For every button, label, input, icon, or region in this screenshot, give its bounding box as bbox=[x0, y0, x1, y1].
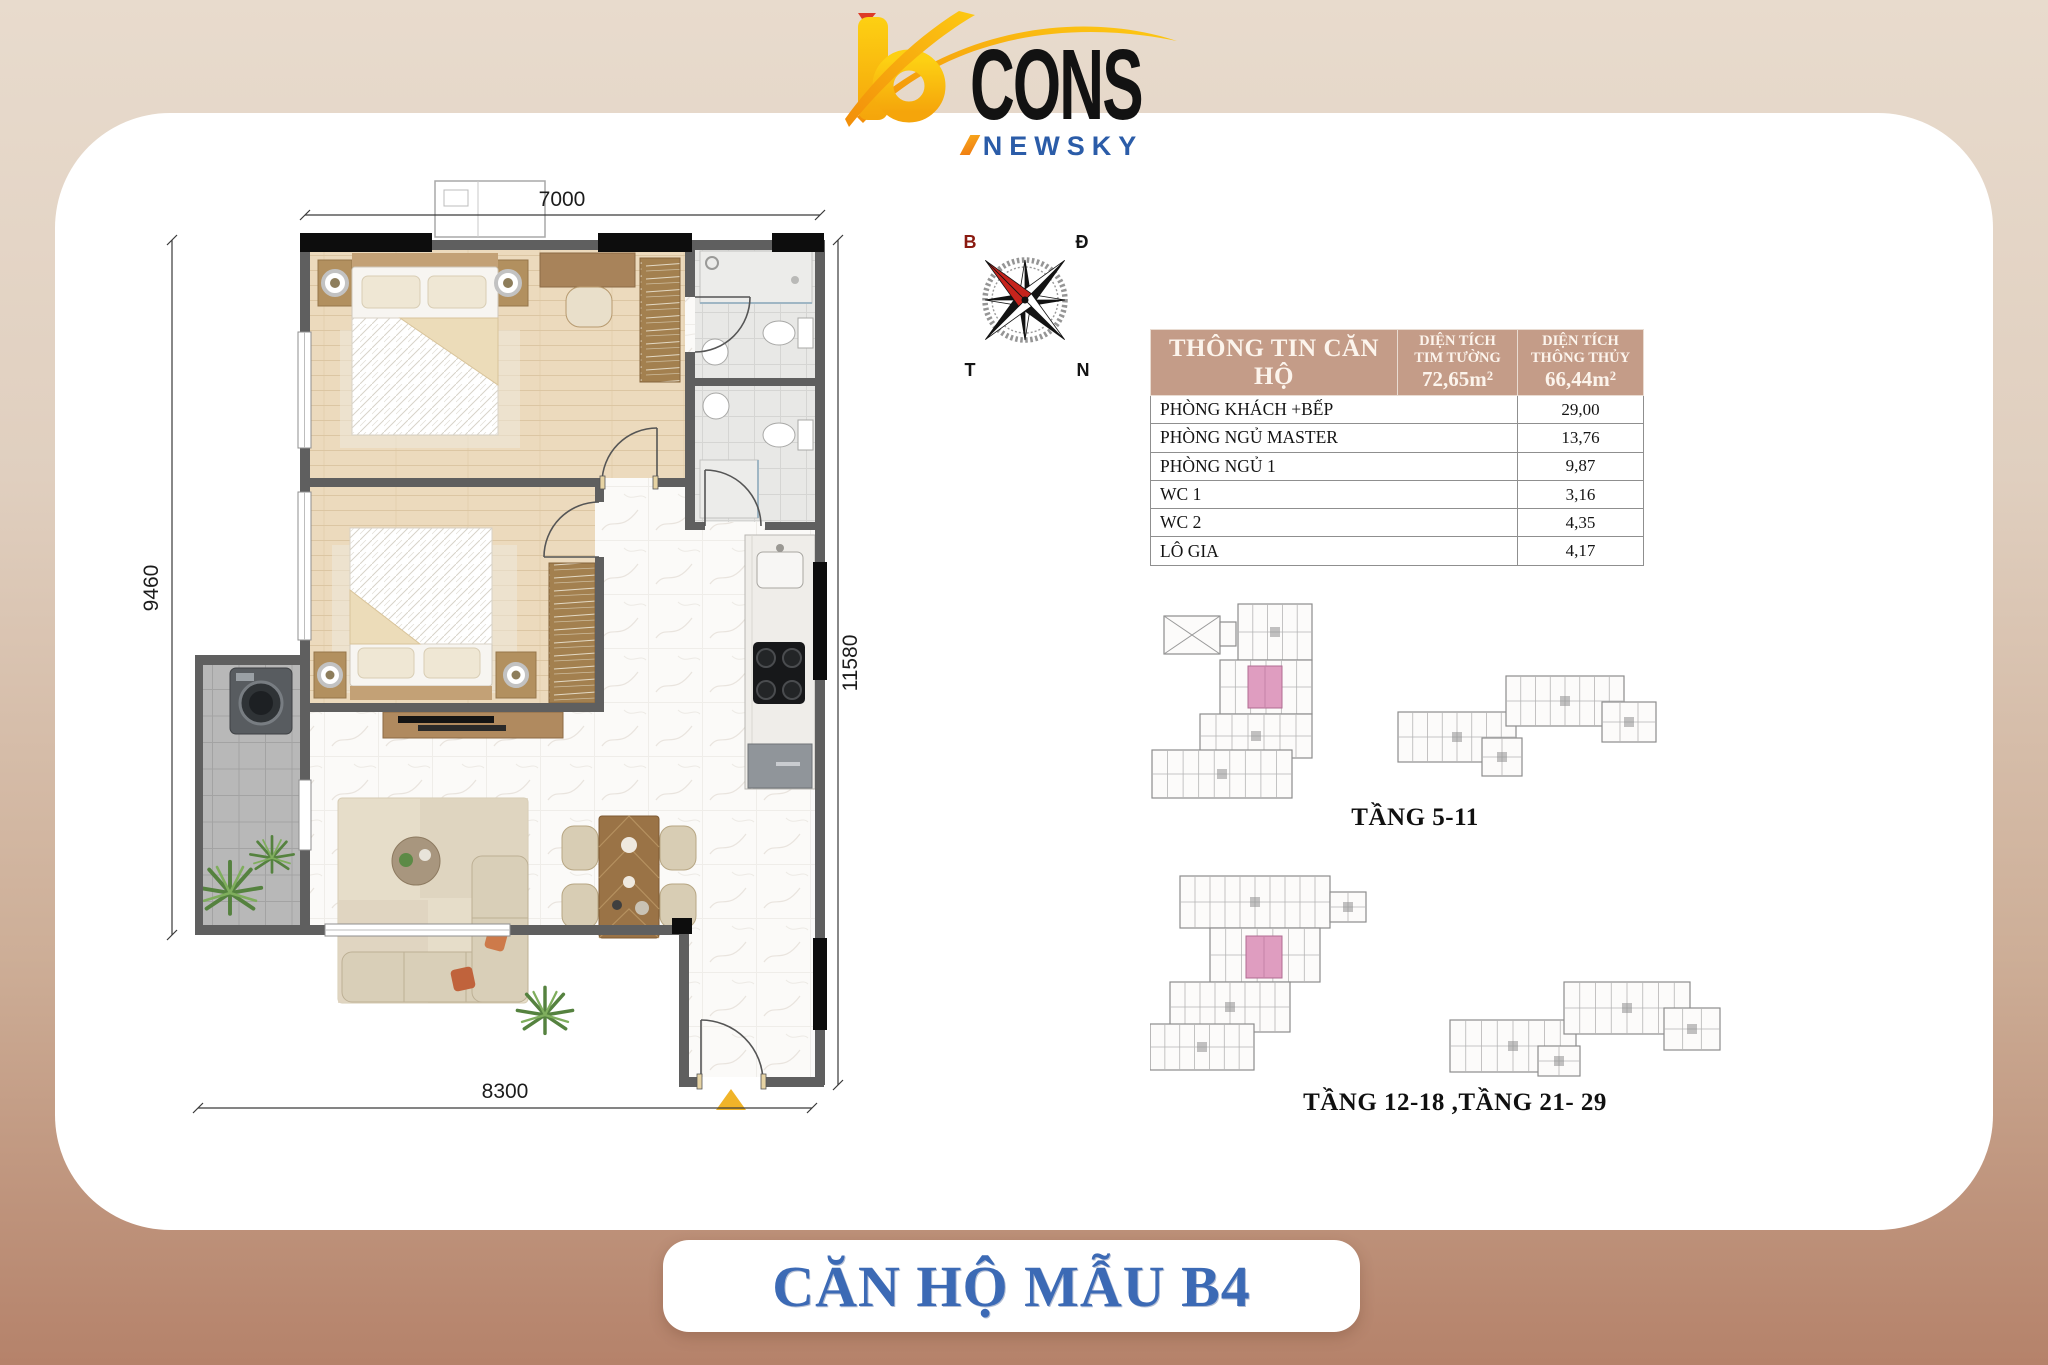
row-label: PHÒNG KHÁCH +BẾP bbox=[1151, 396, 1518, 424]
compass-label-t: T bbox=[965, 360, 976, 380]
col-gross-value: 72,65m² bbox=[1399, 367, 1516, 392]
col-net-value: 66,44m² bbox=[1519, 367, 1642, 392]
col-net-area: DIỆN TÍCH THÔNG THỦY 66,44m² bbox=[1518, 330, 1644, 396]
row-value: 29,00 bbox=[1518, 396, 1644, 424]
logo-word-cons: CONS bbox=[970, 45, 1142, 125]
keyplan-floors-12-29 bbox=[1150, 862, 1760, 1087]
col-gross-area: DIỆN TÍCH TIM TƯỜNG 72,65m² bbox=[1398, 330, 1518, 396]
row-value: 4,17 bbox=[1518, 537, 1644, 565]
apartment-info-table: THÔNG TIN CĂN HỘ DIỆN TÍCH TIM TƯỜNG 72,… bbox=[1150, 329, 1644, 566]
table-row: LÔ GIA4,17 bbox=[1151, 537, 1644, 565]
table-row: PHÒNG NGỦ MASTER13,76 bbox=[1151, 424, 1644, 452]
row-label: PHÒNG NGỦ 1 bbox=[1151, 452, 1518, 480]
row-value: 9,87 bbox=[1518, 452, 1644, 480]
page-title: CĂN HỘ MẪU B4 bbox=[772, 1253, 1251, 1320]
row-label: PHÒNG NGỦ MASTER bbox=[1151, 424, 1518, 452]
logo-word-newsky: NEWSKY bbox=[963, 131, 1163, 162]
entrance-marker-icon bbox=[716, 1089, 746, 1110]
compass-label-d: Đ bbox=[1076, 232, 1089, 252]
table-row: PHÒNG KHÁCH +BẾP29,00 bbox=[1151, 396, 1644, 424]
row-value: 4,35 bbox=[1518, 509, 1644, 537]
col-net-label: DIỆN TÍCH THÔNG THỦY bbox=[1519, 333, 1642, 366]
compass-label-n: N bbox=[1077, 360, 1090, 380]
table-row: WC 24,35 bbox=[1151, 509, 1644, 537]
keyplan-2-label: TẦNG 12-18 ,TẦNG 21- 29 bbox=[1150, 1089, 1760, 1117]
title-banner: CĂN HỘ MẪU B4 bbox=[663, 1240, 1360, 1332]
dim-top: 7000 bbox=[539, 188, 586, 211]
keyplan-1-label: TẦNG 5-11 bbox=[1150, 804, 1680, 832]
logo-n-accent bbox=[960, 135, 981, 155]
dim-left: 9460 bbox=[140, 565, 163, 612]
row-label: LÔ GIA bbox=[1151, 537, 1518, 565]
col-gross-label: DIỆN TÍCH TIM TƯỜNG bbox=[1399, 333, 1516, 366]
table-title: THÔNG TIN CĂN HỘ bbox=[1151, 330, 1398, 396]
table-row: WC 13,16 bbox=[1151, 480, 1644, 508]
brand-logo: CONS NEWSKY bbox=[845, 5, 1225, 170]
row-value: 13,76 bbox=[1518, 424, 1644, 452]
row-label: WC 1 bbox=[1151, 480, 1518, 508]
compass-label-b: B bbox=[964, 232, 977, 252]
row-label: WC 2 bbox=[1151, 509, 1518, 537]
dim-right: 11580 bbox=[839, 635, 862, 692]
table-row: PHÒNG NGỦ 19,87 bbox=[1151, 452, 1644, 480]
compass-icon: B Đ T N bbox=[930, 228, 1120, 383]
floor-plan: 7000 9460 11580 8300 bbox=[120, 150, 880, 1150]
poster: CONS NEWSKY bbox=[0, 0, 2048, 1365]
logo-sub-text: NEWSKY bbox=[983, 131, 1144, 161]
row-value: 3,16 bbox=[1518, 480, 1644, 508]
keyplan-floors-5-11 bbox=[1150, 600, 1680, 805]
dim-bottom: 8300 bbox=[482, 1080, 529, 1103]
